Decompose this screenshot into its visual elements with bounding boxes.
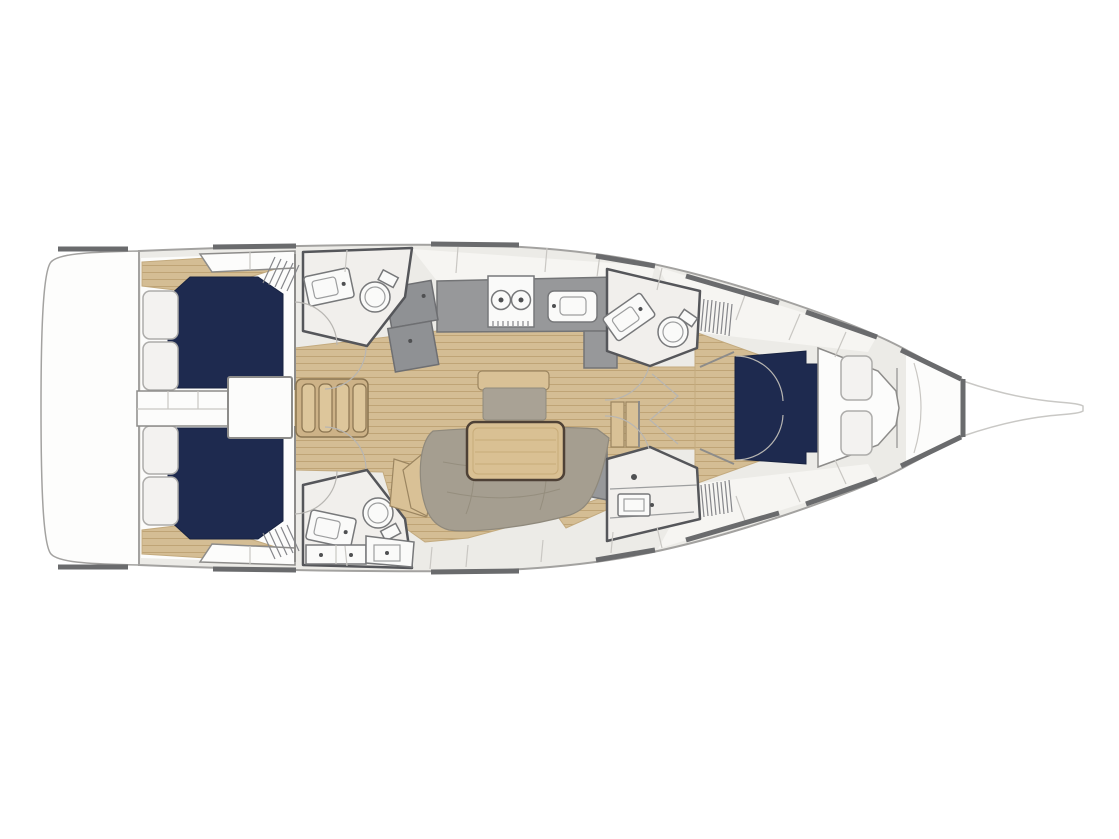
pillow [841, 411, 872, 455]
pillow [841, 356, 872, 400]
pillow [143, 477, 178, 525]
step-tread [353, 384, 366, 432]
floor-plan-svg [0, 0, 1119, 839]
port-shelf-band [200, 251, 295, 272]
berth-aft-port [168, 277, 283, 388]
bowsprit [963, 381, 1083, 436]
stove [488, 276, 534, 327]
berth-forward [735, 351, 818, 464]
engine-box [228, 377, 292, 438]
swim-platform-transom [41, 251, 139, 565]
boat-floor-plan [0, 0, 1119, 839]
step-tread [319, 384, 332, 432]
side-cabinet [611, 402, 624, 447]
pillow [143, 426, 178, 474]
sink-fixture [618, 494, 654, 516]
mast-foot [631, 474, 637, 480]
berth-aft-starboard [168, 428, 283, 539]
pillow [143, 342, 178, 390]
starboard-shelf-band [200, 544, 295, 565]
bench-frame [478, 371, 549, 390]
galley-sink [548, 291, 597, 322]
anchor-locker-bow [906, 355, 962, 461]
step-tread [336, 384, 349, 432]
salon-table [467, 422, 564, 480]
pillow [143, 291, 178, 339]
bench-cushion [483, 388, 546, 420]
step-tread [302, 384, 315, 432]
